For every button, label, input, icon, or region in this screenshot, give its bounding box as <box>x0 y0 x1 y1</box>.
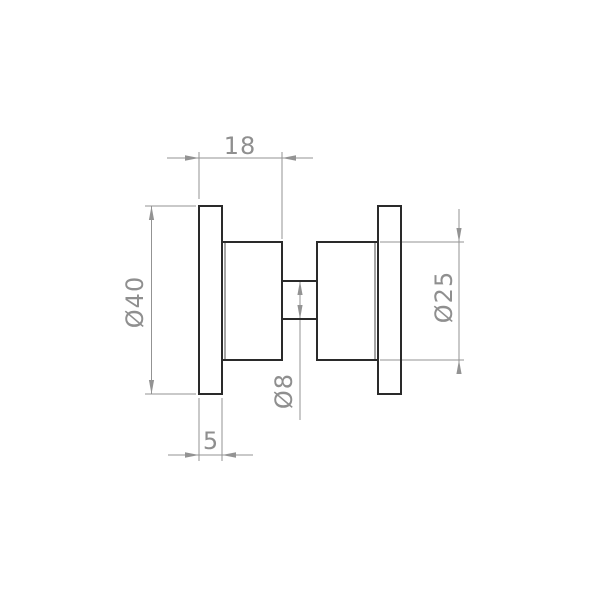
dim-label-dia25: Ø25 <box>430 271 458 323</box>
dim-label-dia8: Ø8 <box>270 373 298 409</box>
dim-label-18: 18 <box>224 132 257 160</box>
dim-label-5: 5 <box>203 427 219 455</box>
door-knob-dimension-drawing: 18 Ø40 Ø25 Ø8 5 <box>0 0 600 600</box>
technical-drawing-page: 18 Ø40 Ø25 Ø8 5 <box>0 0 600 600</box>
dim-label-dia40: Ø40 <box>121 276 149 328</box>
